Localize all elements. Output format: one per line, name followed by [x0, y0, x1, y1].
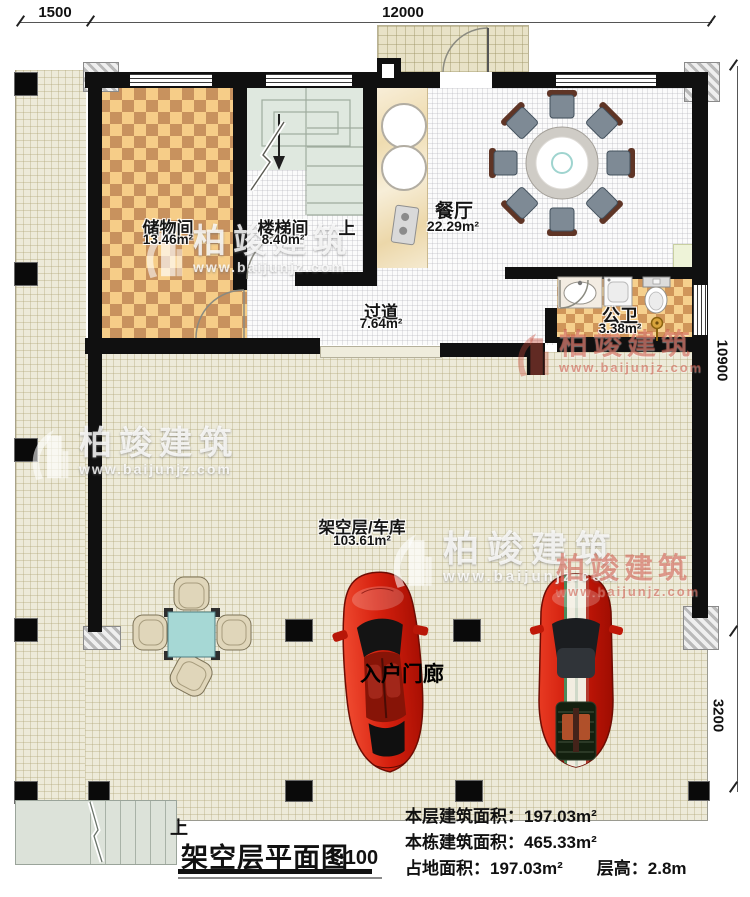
storage-door-arc: [196, 290, 244, 338]
patio-table-set: [133, 577, 251, 700]
stat-value: 197.03m²: [524, 807, 597, 826]
storage-area: 13.46m²: [128, 232, 208, 247]
bathroom-drain: [652, 318, 663, 342]
title-underline-thick: [178, 869, 372, 874]
dim-right-upper: 10900: [714, 331, 731, 391]
dimension-line-right: [737, 66, 738, 792]
stat-label: 本层建筑面积：: [405, 807, 524, 826]
dim-top-main: 12000: [368, 4, 438, 21]
dim-top-left: 1500: [30, 4, 80, 21]
dimension-line-top: [20, 22, 712, 23]
stat-floor-area: 本层建筑面积：197.03m²: [405, 804, 687, 830]
stat-label: 占地面积：: [405, 859, 490, 878]
floor-plan-canvas: 柏竣建筑 www.baijunjz.com 柏竣建筑 www.baijunjz.…: [0, 0, 750, 897]
entry-porch-label: 入户门廊: [356, 658, 448, 688]
furniture-layer: [0, 0, 750, 897]
dining-table-set: [489, 90, 635, 236]
stat-building-area: 本栋建筑面积：465.33m²: [405, 830, 687, 856]
bathroom-toilet: [643, 277, 670, 313]
plan-stats: 本层建筑面积：197.03m² 本栋建筑面积：465.33m² 占地面积：197…: [405, 804, 687, 882]
stat-value: 2.8m: [648, 859, 687, 878]
stat-land-height: 占地面积：197.03m²层高：2.8m: [405, 856, 687, 882]
stairwell-up-label: 上: [337, 214, 357, 239]
stairwell-area: 8.40m²: [252, 232, 314, 247]
stat-value: 197.03m²: [490, 859, 563, 878]
entry-door-arc: [443, 28, 488, 72]
bathroom-area: 3.38m²: [595, 321, 645, 336]
dining-area: 22.29m²: [420, 218, 486, 234]
stairwell-detail: [262, 88, 363, 215]
title-underline-thin: [178, 877, 382, 879]
dim-right-lower: 3200: [710, 691, 727, 741]
hallway-area: 7.64m²: [356, 316, 406, 331]
stat-label: 本栋建筑面积：: [405, 833, 524, 852]
stat-value: 465.33m²: [524, 833, 597, 852]
car-right: [529, 574, 624, 767]
plan-scale: 1:100: [327, 847, 378, 870]
stat-label: 层高：: [597, 859, 648, 878]
garage-area: 103.61m²: [325, 533, 399, 548]
